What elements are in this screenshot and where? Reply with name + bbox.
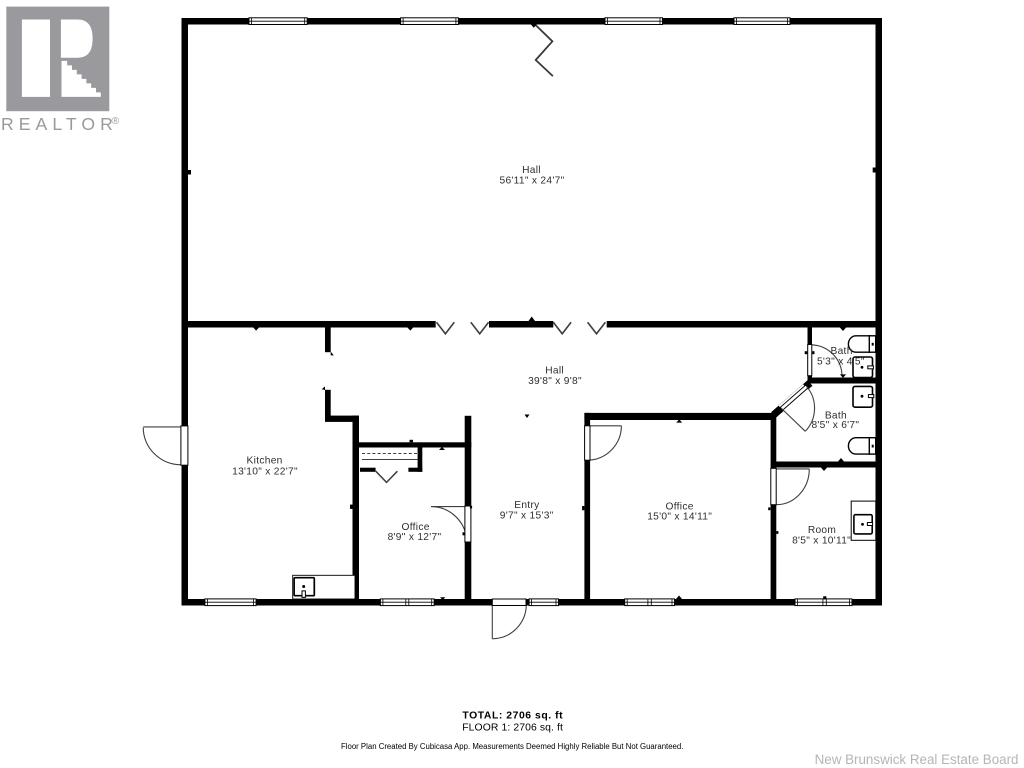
svg-text:8'9" x 12'7": 8'9" x 12'7"	[388, 532, 442, 543]
svg-text:®: ®	[112, 115, 120, 127]
svg-text:Hall: Hall	[522, 165, 541, 176]
svg-text:Kitchen: Kitchen	[247, 456, 283, 467]
svg-text:5'3" x 4'5": 5'3" x 4'5"	[817, 356, 865, 367]
svg-text:56'11" x 24'7": 56'11" x 24'7"	[500, 175, 565, 186]
svg-text:8'5" x 10'11": 8'5" x 10'11"	[792, 536, 851, 547]
svg-text:TOTAL: 2706 sq. ft: TOTAL: 2706 sq. ft	[462, 711, 563, 722]
svg-text:8'5" x 6'7": 8'5" x 6'7"	[811, 420, 859, 431]
svg-text:13'10" x 22'7": 13'10" x 22'7"	[232, 467, 298, 478]
svg-text:REALTOR: REALTOR	[1, 114, 118, 134]
svg-text:15'0" x 14'11": 15'0" x 14'11"	[647, 511, 712, 522]
svg-text:Room: Room	[808, 525, 836, 536]
svg-text:FLOOR 1: 2706 sq. ft: FLOOR 1: 2706 sq. ft	[462, 722, 563, 733]
svg-text:Hall: Hall	[545, 365, 564, 376]
svg-text:New Brunswick Real Estate Boar: New Brunswick Real Estate Board	[815, 752, 1019, 767]
svg-text:9'7" x 15'3": 9'7" x 15'3"	[500, 511, 554, 522]
svg-text:39'8" x 9'8": 39'8" x 9'8"	[528, 376, 582, 387]
svg-text:Floor Plan Created By Cubicasa: Floor Plan Created By Cubicasa App. Meas…	[341, 742, 683, 751]
svg-text:Entry: Entry	[514, 500, 540, 511]
